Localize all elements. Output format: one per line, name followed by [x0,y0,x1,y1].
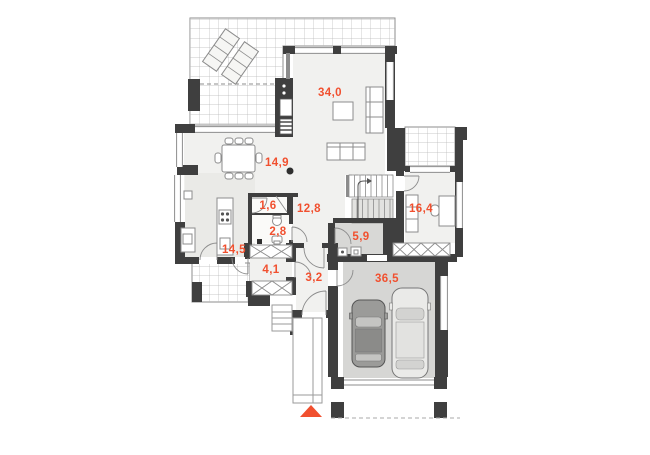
coffee-table [333,102,353,120]
terrace-column [188,79,200,111]
window [195,126,275,133]
window [440,276,448,330]
floor-plan-page: 34,0 14,9 1,6 12,8 16,4 2,8 5,9 14,5 4,1… [0,0,650,455]
room-label-garage: 36,5 [375,273,399,285]
window [456,182,463,228]
driveway [331,402,460,418]
room-label-vestibule: 3,2 [305,272,322,284]
room-label-office: 16,4 [409,203,433,215]
window [341,47,385,54]
floor-plan-svg: 34,0 14,9 1,6 12,8 16,4 2,8 5,9 14,5 4,1… [0,0,650,455]
room-label-living: 34,0 [318,87,342,99]
stairs [349,175,393,223]
room-label-hall: 12,8 [297,203,321,215]
wc-fixture [257,239,262,244]
wc-sink [273,216,282,226]
walkway [272,305,322,403]
window [386,62,394,100]
sofa-side [366,87,383,133]
window [174,175,181,222]
window [410,166,450,173]
room-label-utility: 5,9 [352,231,369,243]
wardrobe-top [250,245,292,258]
room-label-wc: 2,8 [269,226,286,238]
wardrobe-office [393,243,450,256]
terrace-kitchen [192,263,250,302]
entrance-steps [272,305,292,331]
wardrobe-bottom [252,281,292,295]
room-label-dining: 14,9 [265,157,289,169]
car-left [350,300,388,367]
window [176,133,183,167]
window [295,47,333,54]
car-right [390,288,431,378]
room-label-wardrobe: 4,1 [262,264,279,276]
room-label-pantry: 1,6 [259,200,276,212]
garage-gate [344,379,434,386]
entrance-arrow [300,405,322,417]
room-label-kitchen: 14,5 [222,244,246,256]
sofa-bottom [327,143,365,160]
